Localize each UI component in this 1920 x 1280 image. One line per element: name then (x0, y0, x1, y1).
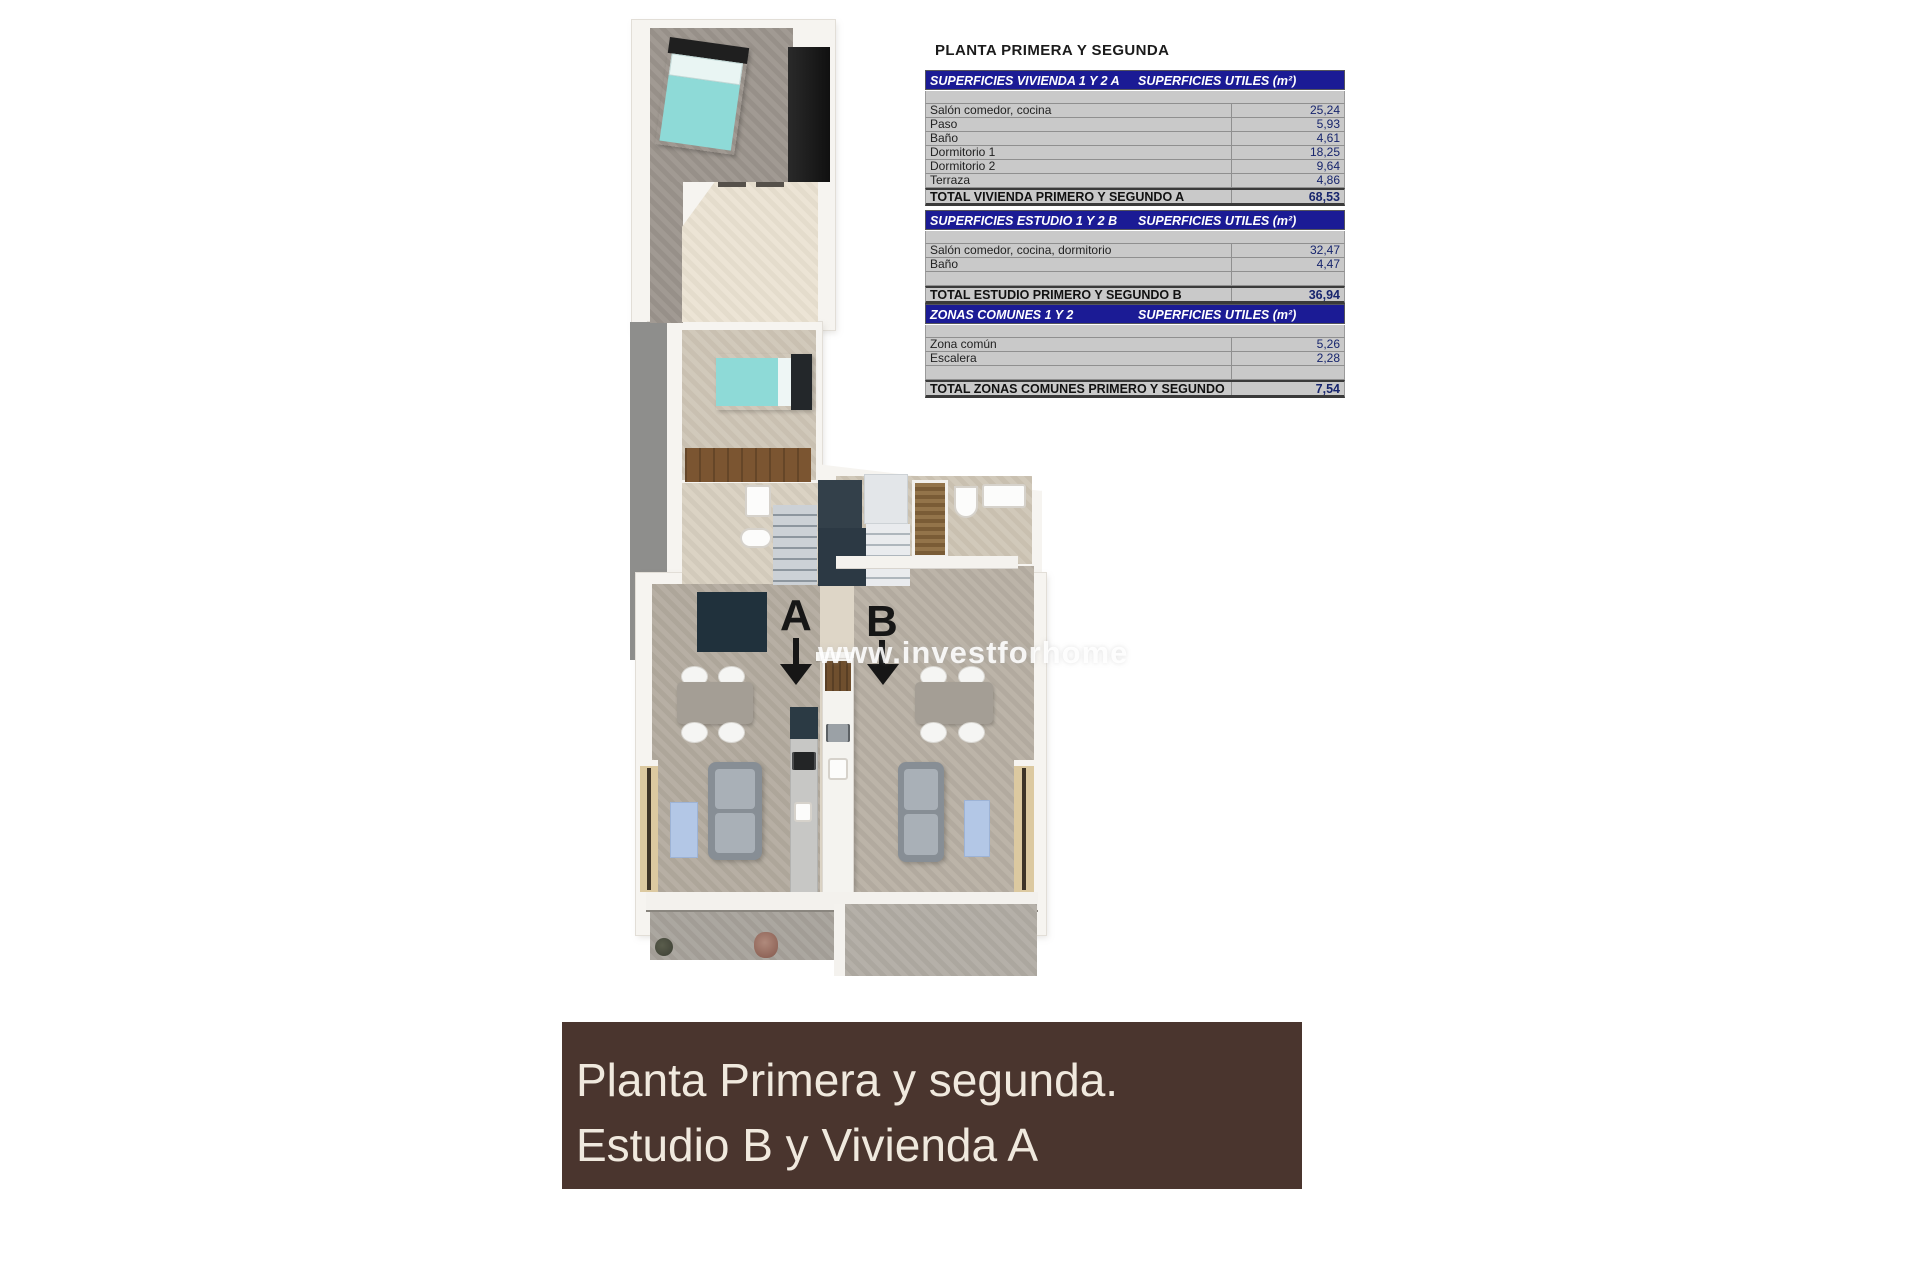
sofa-cushions (715, 769, 755, 809)
row-value: 18,25 (1231, 146, 1344, 159)
row-label: Baño (926, 132, 1231, 145)
row-value: 9,64 (1231, 160, 1344, 173)
table-row: Salón comedor, cocina25,24 (925, 104, 1345, 118)
row-value (1231, 366, 1344, 379)
row-label: Baño (926, 258, 1231, 271)
table-row: Escalera2,28 (925, 352, 1345, 366)
window-left (640, 760, 658, 898)
table-row: Baño4,61 (925, 132, 1345, 146)
bed-mattress (716, 358, 778, 406)
table-spacer-row (925, 91, 1345, 104)
table-spacer-row (925, 325, 1345, 338)
total-label: TOTAL ESTUDIO PRIMERO Y SEGUNDO B (926, 288, 1231, 301)
total-value: 36,94 (1231, 288, 1344, 301)
row-value: 4,61 (1231, 132, 1344, 145)
table-header-name: ZONAS COMUNES 1 Y 2 (926, 308, 1073, 322)
window-right (1014, 760, 1034, 898)
page: A B www.investforhome PLANTA PRIMERA Y S… (0, 0, 1920, 1280)
sink-icon (982, 484, 1026, 508)
caption-line-1: Planta Primera y segunda. (576, 1048, 1302, 1113)
table-header: SUPERFICIES VIVIENDA 1 Y 2 A SUPERFICIES… (925, 70, 1345, 90)
plant-icon (655, 938, 673, 956)
wardrobe-icon (788, 47, 830, 182)
chair-icon (920, 722, 947, 743)
table-row: Zona común5,26 (925, 338, 1345, 352)
table-row: Baño4,47 (925, 258, 1345, 272)
sink-icon (745, 485, 771, 517)
sink-square-icon (794, 802, 812, 822)
wall-partition-b (836, 556, 1018, 568)
caption-line-2: Estudio B y Vivienda A (576, 1113, 1302, 1178)
chair-icon (681, 722, 708, 743)
row-value: 4,47 (1231, 258, 1344, 271)
bathtub-icon (740, 528, 772, 548)
table-vivienda-a: SUPERFICIES VIVIENDA 1 Y 2 A SUPERFICIES… (925, 70, 1345, 206)
table-header-units: SUPERFICIES UTILES (m²) (1138, 211, 1296, 231)
cooktop-icon (826, 724, 850, 742)
table-row: Dormitorio 118,25 (925, 146, 1345, 160)
row-value: 5,26 (1231, 338, 1344, 351)
stairs-cabinet-dark (818, 480, 862, 528)
total-label: TOTAL VIVIENDA PRIMERO Y SEGUNDO A (926, 190, 1231, 203)
row-label (926, 272, 1231, 285)
watermark-text: www.investforhome (818, 635, 1128, 671)
sofa-cushions (904, 769, 938, 810)
window-frame-line (1022, 768, 1026, 890)
chair-icon (718, 722, 745, 743)
table-header: SUPERFICIES ESTUDIO 1 Y 2 B SUPERFICIES … (925, 210, 1345, 230)
door-mark (718, 182, 746, 187)
unit-label-a: A (780, 594, 812, 638)
bed-headboard (791, 354, 812, 410)
row-label: Salón comedor, cocina (926, 104, 1231, 117)
row-value (1231, 272, 1344, 285)
arrow-down-icon (793, 638, 799, 666)
table-header-name: SUPERFICIES VIVIENDA 1 Y 2 A (926, 74, 1120, 88)
kitchen-island (822, 658, 854, 906)
arrow-down-icon (780, 664, 812, 685)
terrace-floor-b (845, 904, 1037, 976)
bed-pillows (778, 358, 791, 406)
table-spacer-row (925, 231, 1345, 244)
rug-icon (670, 802, 698, 858)
sofa-a (708, 762, 762, 860)
row-label: Escalera (926, 352, 1231, 365)
row-value: 5,93 (1231, 118, 1344, 131)
row-value: 4,86 (1231, 174, 1344, 187)
table-body: Salón comedor, cocina, dormitorio32,47Ba… (925, 244, 1345, 286)
bed-double-icon (655, 37, 749, 155)
stairs-cabinet-light (864, 474, 908, 524)
table-row: Terraza4,86 (925, 174, 1345, 188)
row-label: Salón comedor, cocina, dormitorio (926, 244, 1231, 257)
dark-cabinet-block (697, 592, 767, 652)
table-total-row: TOTAL ZONAS COMUNES PRIMERO Y SEGUNDO 7,… (925, 380, 1345, 398)
table-row (925, 366, 1345, 380)
table-zonas-comunes: ZONAS COMUNES 1 Y 2 SUPERFICIES UTILES (… (925, 304, 1345, 398)
row-value: 25,24 (1231, 104, 1344, 117)
table-total-row: TOTAL ESTUDIO PRIMERO Y SEGUNDO B 36,94 (925, 286, 1345, 304)
shower-icon (912, 480, 948, 558)
cooktop-icon (792, 752, 816, 770)
stairs-flight-2 (866, 524, 910, 586)
table-header: ZONAS COMUNES 1 Y 2 SUPERFICIES UTILES (… (925, 304, 1345, 324)
row-label: Paso (926, 118, 1231, 131)
table-row: Paso5,93 (925, 118, 1345, 132)
rug-icon (964, 800, 990, 857)
table-body: Salón comedor, cocina25,24Paso5,93Baño4,… (925, 104, 1345, 188)
chair-icon (958, 722, 985, 743)
kitchen-cabinet-dark (790, 707, 818, 739)
row-label (926, 366, 1231, 379)
total-label: TOTAL ZONAS COMUNES PRIMERO Y SEGUNDO (926, 382, 1231, 395)
caption-text: Planta Primera y segunda. Estudio B y Vi… (562, 1022, 1302, 1179)
page-title: PLANTA PRIMERA Y SEGUNDA (935, 42, 1169, 59)
table-row: Salón comedor, cocina, dormitorio32,47 (925, 244, 1345, 258)
terrace-divider-wall (834, 904, 845, 976)
total-value: 7,54 (1231, 382, 1344, 395)
door-mark (756, 182, 784, 187)
dining-table-b (915, 682, 993, 724)
table-row (925, 272, 1345, 286)
row-label: Zona común (926, 338, 1231, 351)
caption-banner: Planta Primera y segunda. Estudio B y Vi… (562, 1022, 1302, 1189)
table-body: Zona común5,26Escalera2,28 (925, 338, 1345, 380)
table-header-name: SUPERFICIES ESTUDIO 1 Y 2 B (926, 214, 1117, 228)
row-value: 2,28 (1231, 352, 1344, 365)
table-header-units: SUPERFICIES UTILES (m²) (1138, 71, 1296, 91)
dining-table-a (677, 682, 753, 724)
wood-wardrobe-icon (685, 448, 811, 482)
sofa-cushions (904, 814, 938, 855)
floor-hallway (650, 182, 683, 323)
sink-square-icon (828, 758, 848, 780)
row-value: 32,47 (1231, 244, 1344, 257)
bed-mattress (659, 75, 739, 150)
window-frame-line (647, 768, 651, 890)
floor-terraza (682, 182, 818, 322)
sofa-b (898, 762, 944, 862)
terrace-floor-a (650, 912, 834, 960)
row-label: Dormitorio 1 (926, 146, 1231, 159)
total-value: 68,53 (1231, 190, 1344, 203)
table-estudio-b: SUPERFICIES ESTUDIO 1 Y 2 B SUPERFICIES … (925, 210, 1345, 304)
toilet-icon (954, 486, 978, 518)
bed-single-icon (716, 354, 812, 410)
table-header-units: SUPERFICIES UTILES (m²) (1138, 305, 1296, 325)
stairs-flight-1 (773, 505, 817, 585)
table-row: Dormitorio 29,64 (925, 160, 1345, 174)
sofa-cushions (715, 813, 755, 853)
row-label: Dormitorio 2 (926, 160, 1231, 173)
plant-icon (754, 932, 778, 958)
row-label: Terraza (926, 174, 1231, 187)
table-total-row: TOTAL VIVIENDA PRIMERO Y SEGUNDO A 68,53 (925, 188, 1345, 206)
